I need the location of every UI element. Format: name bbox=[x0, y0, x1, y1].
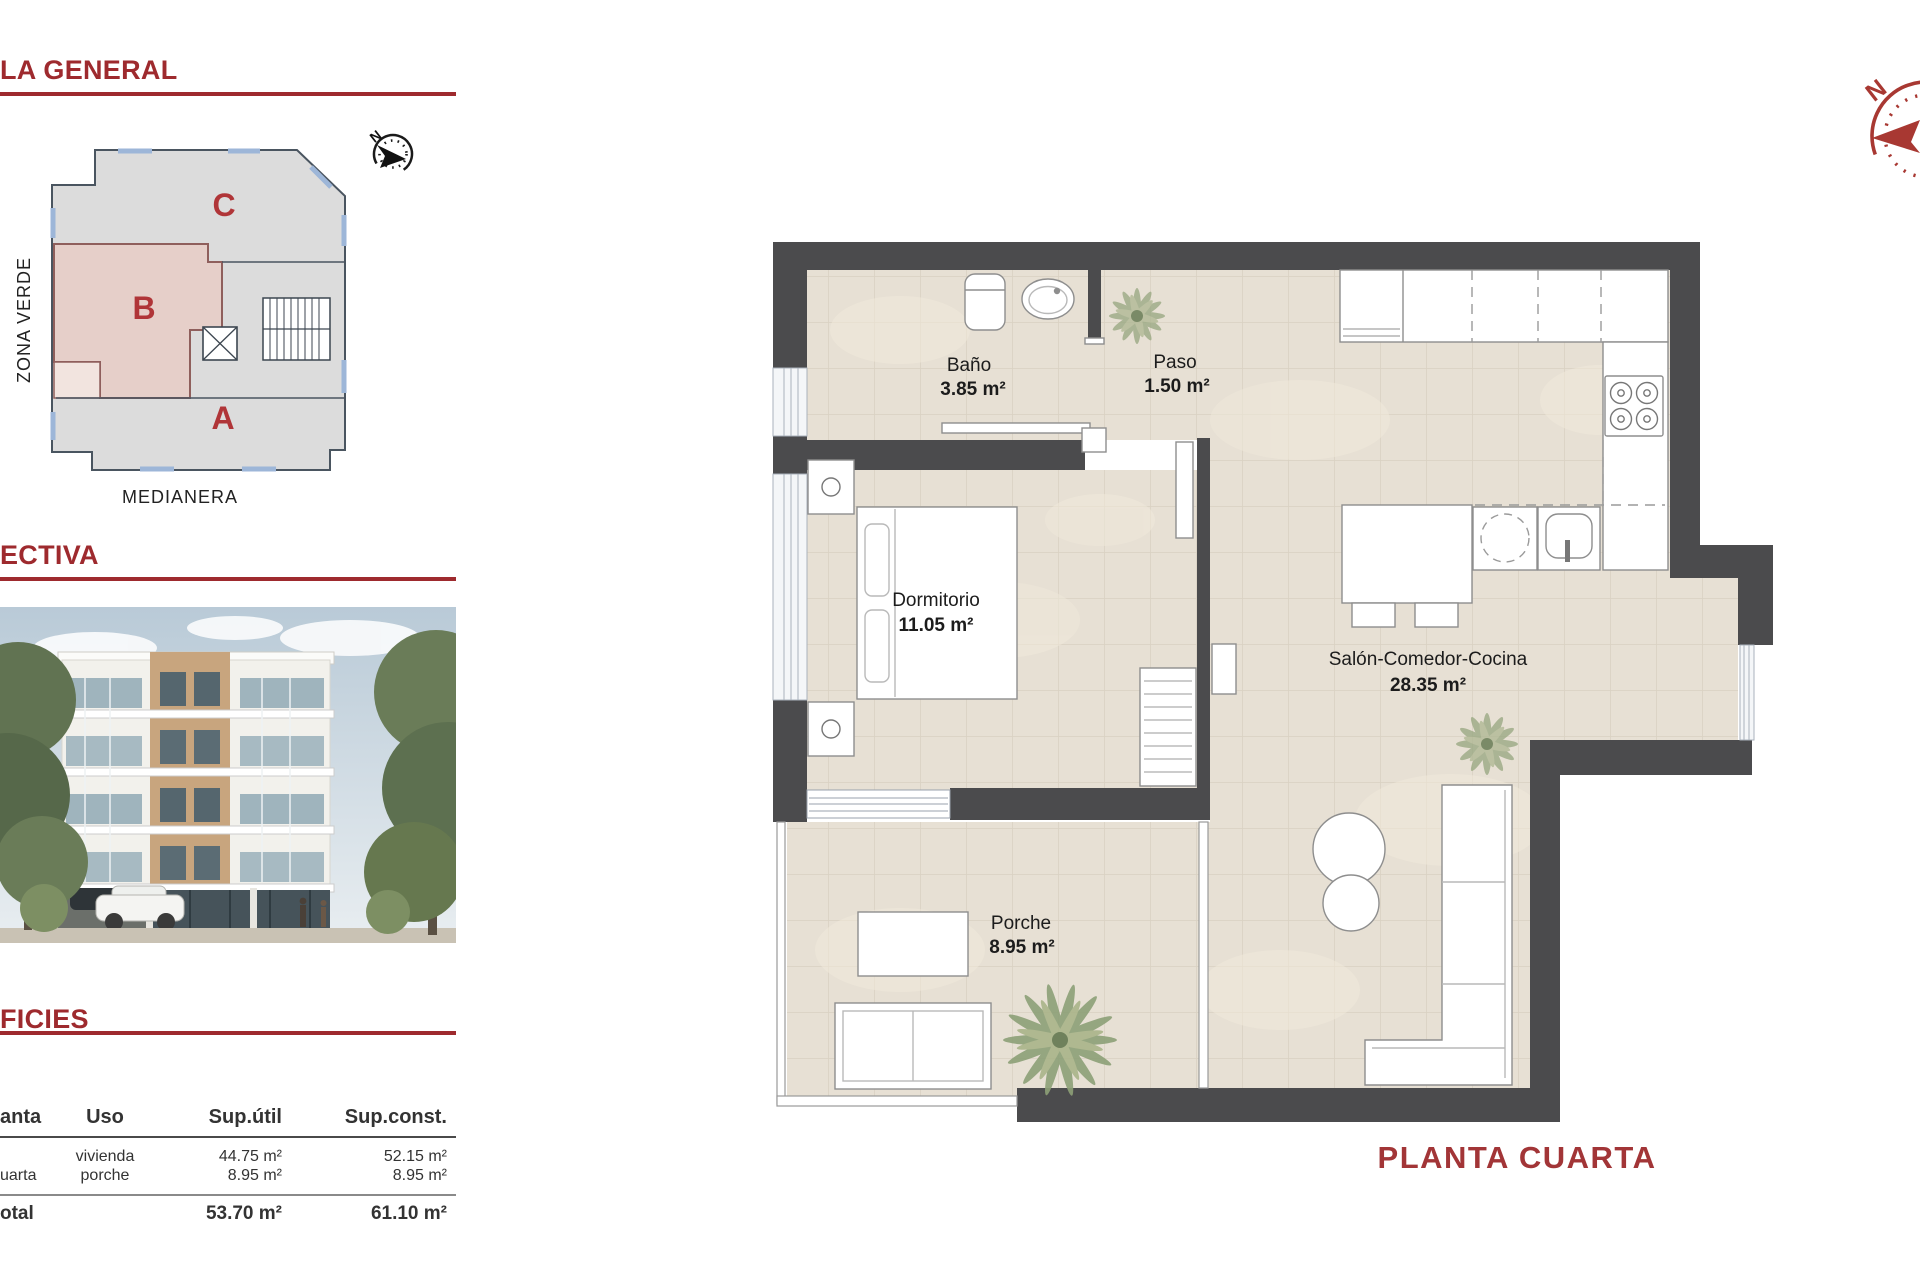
room-paso-area: 1.50 m² bbox=[1144, 376, 1209, 397]
uso-porche: porche bbox=[62, 1166, 148, 1185]
radiator-icon bbox=[1140, 668, 1196, 786]
stool bbox=[1352, 603, 1395, 627]
uso-vivienda: vivienda bbox=[62, 1147, 148, 1166]
site-compass-n: N bbox=[366, 127, 384, 146]
room-porche-area: 8.95 m² bbox=[989, 937, 1054, 958]
north-compass-n: N bbox=[1860, 74, 1891, 107]
room-salon-area: 28.35 m² bbox=[1390, 675, 1466, 696]
zone-b-label: B bbox=[132, 290, 155, 326]
cell-sup-util: 44.75 m² 8.95 m² bbox=[148, 1147, 282, 1185]
cell-planta: uarta bbox=[0, 1166, 62, 1185]
room-dormitorio-area: 11.05 m² bbox=[899, 615, 974, 636]
room-dormitorio-label: Dormitorio bbox=[892, 590, 980, 611]
const-vivienda: 52.15 m² bbox=[282, 1147, 447, 1166]
util-vivienda: 44.75 m² bbox=[148, 1147, 282, 1166]
section-rule bbox=[0, 92, 456, 96]
graphics-layer: C B A ZONA VERDE MEDIANERA N bbox=[0, 0, 1920, 1280]
site-plan: C B A ZONA VERDE MEDIANERA N bbox=[14, 127, 419, 507]
stool bbox=[1415, 603, 1458, 627]
nightstand bbox=[808, 702, 854, 756]
site-plan-section-b-terrace bbox=[54, 362, 100, 398]
surfaces-table-header: anta Uso Sup.útil Sup.const. bbox=[0, 1100, 456, 1129]
section-rule bbox=[0, 577, 456, 581]
toilet-icon bbox=[965, 274, 1005, 330]
section-title-general: LA GENERAL bbox=[0, 55, 178, 86]
bedroom-door-leaf bbox=[1176, 442, 1193, 538]
kitchen-island bbox=[1342, 505, 1472, 603]
nightstand bbox=[808, 460, 854, 514]
header-planta: anta bbox=[0, 1106, 62, 1129]
dishwasher-icon bbox=[1473, 507, 1537, 570]
side-table bbox=[1313, 813, 1385, 885]
medianera-label: MEDIANERA bbox=[122, 487, 238, 507]
stove-icon bbox=[1605, 376, 1663, 436]
util-porche: 8.95 m² bbox=[148, 1166, 282, 1185]
const-porche: 8.95 m² bbox=[282, 1166, 447, 1185]
room-paso-label: Paso bbox=[1153, 352, 1196, 373]
section-rule bbox=[0, 1031, 456, 1035]
elevator-icon bbox=[203, 327, 237, 360]
zona-verde-label: ZONA VERDE bbox=[14, 257, 34, 383]
building-rendering bbox=[0, 607, 514, 943]
header-sup-const: Sup.const. bbox=[282, 1106, 447, 1129]
paso-shelf bbox=[1082, 428, 1106, 452]
kitchen-counter-top bbox=[1340, 270, 1668, 342]
cell-uso: vivienda porche bbox=[62, 1147, 148, 1185]
total-label: otal bbox=[0, 1203, 62, 1225]
zone-a-label: A bbox=[211, 400, 234, 436]
section-title-perspective: ECTIVA bbox=[0, 540, 99, 571]
header-sup-util: Sup.útil bbox=[148, 1106, 282, 1129]
sliding-door bbox=[807, 790, 950, 818]
cell-sup-const: 52.15 m² 8.95 m² bbox=[282, 1147, 447, 1185]
surfaces-table: anta Uso Sup.útil Sup.const. uarta vivie… bbox=[0, 1100, 456, 1225]
plan-sheet: C B A ZONA VERDE MEDIANERA N bbox=[0, 0, 1920, 1280]
total-const: 61.10 m² bbox=[282, 1203, 447, 1225]
total-util: 53.70 m² bbox=[148, 1203, 282, 1225]
tv-bench bbox=[1212, 644, 1236, 694]
porch-table bbox=[858, 912, 968, 976]
north-compass-icon: N bbox=[1857, 67, 1920, 205]
table-row: uarta vivienda porche 44.75 m² 8.95 m² 5… bbox=[0, 1138, 456, 1185]
bath-door-sill bbox=[1085, 338, 1104, 344]
header-uso: Uso bbox=[62, 1106, 148, 1129]
vanity bbox=[942, 423, 1090, 433]
plan-title: PLANTA CUARTA bbox=[1378, 1140, 1657, 1175]
floor-plan: Baño 3.85 m² Paso 1.50 m² Dormitorio 11.… bbox=[773, 242, 1773, 1175]
site-compass-icon: N bbox=[366, 127, 418, 180]
table-total-row: otal 53.70 m² 61.10 m² bbox=[0, 1196, 456, 1225]
side-table bbox=[1323, 875, 1379, 931]
room-bano-area: 3.85 m² bbox=[940, 379, 1005, 400]
room-salon-label: Salón-Comedor-Cocina bbox=[1329, 649, 1528, 670]
room-porche-label: Porche bbox=[991, 913, 1051, 934]
room-bano-label: Baño bbox=[947, 355, 991, 376]
stairs-icon bbox=[263, 298, 330, 360]
zone-c-label: C bbox=[212, 187, 235, 223]
